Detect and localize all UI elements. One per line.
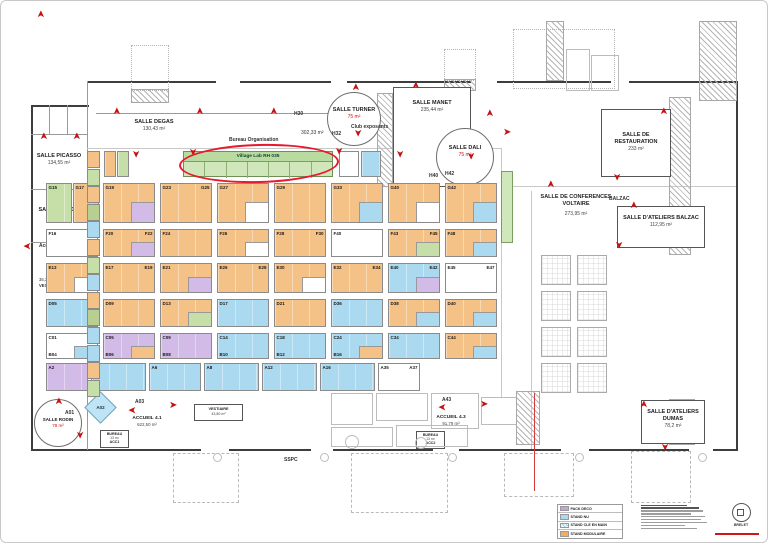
booth: [87, 239, 100, 256]
booth: F20F22: [103, 229, 155, 257]
booth-code: E19: [144, 265, 152, 270]
booth: E21: [160, 263, 212, 293]
booth: [87, 345, 100, 362]
booth: G27: [217, 183, 269, 223]
entrance-arrow-icon: ➤: [40, 132, 50, 140]
booth: G29: [274, 183, 326, 223]
booth-section: [188, 277, 211, 292]
booth-code: D21: [277, 301, 285, 306]
booth-code: D40: [448, 301, 456, 306]
booth: E17E19: [103, 263, 155, 293]
stair-block: [541, 363, 571, 393]
entrance-arrow-icon: ➤: [660, 107, 670, 115]
stair-block: [577, 255, 607, 285]
legend-item: PACK DECO: [558, 505, 622, 513]
booth: E30: [274, 263, 326, 293]
booth-code: F20: [106, 231, 114, 236]
label-h40: H40: [429, 173, 438, 179]
entrance-arrow-icon: ➤: [196, 107, 206, 115]
entrance-arrow-icon: ➤: [352, 83, 362, 91]
booth-code: D17: [220, 301, 228, 306]
booth: G23G25: [160, 183, 212, 223]
booth-code: C05: [106, 335, 114, 340]
booth-section: [188, 312, 211, 326]
booth: G42: [445, 183, 497, 223]
booth: F26: [217, 229, 269, 257]
entrance-arrow-icon: ➤: [394, 150, 404, 158]
wall-right: [736, 81, 738, 450]
booth-code: F28: [277, 231, 285, 236]
booth-code: C01: [49, 335, 57, 340]
booth-code: C34: [391, 335, 399, 340]
booth-code: D13: [163, 301, 171, 306]
booth-section: [359, 202, 382, 222]
booth: G40: [388, 183, 440, 223]
booth-code: A37: [409, 365, 417, 370]
booth: E40E42: [388, 263, 440, 293]
room-salle-restauration: SALLE DE RESTAURATION 233 m²: [601, 109, 671, 177]
booth: G15: [46, 183, 72, 223]
booth-code: B16: [334, 352, 342, 357]
booth: A35A37: [378, 363, 420, 391]
booth: A2: [46, 363, 88, 391]
axis-line: [534, 393, 535, 491]
booth: F43F45: [388, 229, 440, 257]
label-hall-area: 302,33 m²: [301, 130, 324, 136]
entrance-arrow-icon: ➤: [465, 152, 475, 160]
booth-code: G29: [277, 185, 286, 190]
room-salle-turner: SALLE TURNER 75 m²: [327, 92, 381, 146]
booth-section: [473, 242, 496, 256]
booth-code: B04: [49, 352, 57, 357]
booth: [361, 151, 381, 177]
entrance-arrow-icon: ➤: [270, 107, 280, 115]
booth: G33: [331, 183, 383, 223]
stair-block: [577, 327, 607, 357]
entrance-arrow-icon: ➤: [128, 404, 136, 414]
entrance-arrow-icon: ➤: [486, 109, 496, 117]
booth-code: D09: [106, 301, 114, 306]
booth: [87, 327, 100, 344]
booth-section: [416, 242, 439, 256]
room-atelier-balzac: SALLE D'ATELIERS BALZAC 112,95 m²: [617, 206, 705, 248]
booth-section: [473, 202, 496, 222]
booth-code: E45: [448, 265, 456, 270]
label-h30: H30: [294, 111, 303, 117]
booth-code: A12: [265, 365, 273, 370]
booth-code: E26: [220, 265, 228, 270]
label-h42: H42: [445, 171, 454, 177]
booth-code: D38: [391, 301, 399, 306]
booth-code: F48: [448, 231, 456, 236]
booth-code: E42: [429, 265, 437, 270]
booth-code: A35: [381, 365, 389, 370]
room-salle-degas: SALLE DEGAS 130,43 m²: [111, 119, 197, 132]
booth-code: C09: [163, 335, 171, 340]
booth: [87, 221, 100, 238]
booth-code: F40: [334, 231, 342, 236]
title-block-info: [641, 503, 709, 531]
booth: D13: [160, 299, 212, 327]
builder-stamp: BRELET: [730, 503, 752, 527]
stair-block: [541, 291, 571, 321]
booth: [87, 274, 100, 291]
legend-label: STAND NU: [571, 515, 589, 519]
booth-section: [131, 346, 154, 358]
booth: D17: [217, 299, 269, 327]
booth: F40: [331, 229, 383, 257]
booth-section: [416, 277, 439, 292]
legend-label: PACK DECO: [571, 507, 592, 511]
legend-swatch: [560, 506, 569, 512]
booth-code: F24: [163, 231, 171, 236]
booth-code: G15: [49, 185, 58, 190]
stamp-logo-icon: [732, 503, 751, 522]
booth-section: [131, 202, 154, 222]
booth-code: A6: [152, 365, 158, 370]
entrance-arrow-icon: ➤: [611, 173, 621, 181]
legend: PACK DECOSTAND NUSTAND CLE EN MAINSTAND …: [557, 504, 623, 539]
booth: [87, 169, 100, 186]
legend-label: STAND CLE EN MAIN: [571, 523, 607, 527]
label-a01: A01: [65, 410, 74, 416]
booth: A12: [262, 363, 317, 391]
booth-code: E28: [258, 265, 266, 270]
entrance-arrow-icon: ➤: [613, 241, 623, 249]
booth: [87, 309, 100, 326]
booth: A6: [149, 363, 201, 391]
booth: D09: [103, 299, 155, 327]
booth-code: E17: [106, 265, 114, 270]
label-h32: H32: [332, 131, 341, 137]
booth-code: E47: [486, 265, 494, 270]
booth: F24: [160, 229, 212, 257]
entrance-arrow-icon: ➤: [640, 400, 650, 408]
legend-label: STAND MODULAIRE: [571, 532, 606, 536]
booth-code: B10: [220, 352, 228, 357]
legend-item: STAND NU: [558, 513, 622, 521]
booth-code: E34: [372, 265, 380, 270]
booth: D21: [274, 299, 326, 327]
booth-section: [473, 346, 496, 358]
booth: [117, 151, 129, 177]
booth-section: [131, 242, 154, 256]
signature-mark: [715, 533, 759, 535]
stamp-name: BRELET: [730, 523, 752, 527]
entrance-arrow-icon: ➤: [23, 240, 31, 250]
booth: E32E34: [331, 263, 383, 293]
booth-code: E13: [49, 265, 57, 270]
booth: [87, 257, 100, 274]
legend-swatch: [560, 523, 569, 529]
booth: F48: [445, 229, 497, 257]
booth-section: [473, 312, 496, 326]
room-salle-picasso: SALLE PICASSO 134,55 m²: [31, 153, 87, 166]
booth: [87, 292, 100, 309]
stair-block: [577, 363, 607, 393]
booth: D36: [331, 299, 383, 327]
booth-code: F45: [430, 231, 438, 236]
room-accueil-41: ACCUEIL 4.1 622,50 m²: [119, 415, 175, 428]
booth: A8: [204, 363, 259, 391]
entrance-arrow-icon: ➤: [130, 150, 140, 158]
booth-code: B08: [163, 352, 171, 357]
booth-code: C14: [220, 335, 228, 340]
entrance-arrow-icon: ➤: [169, 401, 177, 411]
booth-code: G27: [220, 185, 229, 190]
label-balzac: BALZAC: [609, 196, 630, 202]
booth-code: A8: [207, 365, 213, 370]
entrance-arrow-icon: ➤: [503, 128, 511, 138]
booth-code: E40: [391, 265, 399, 270]
room-bureau-acc1: BUREAU 13 m² ACC1: [100, 430, 129, 448]
booth-section: [245, 202, 268, 222]
booth-code: G40: [391, 185, 400, 190]
entrance-arrow-icon: ➤: [113, 107, 123, 115]
booth-code: G33: [334, 185, 343, 190]
booth-code: D05: [49, 301, 57, 306]
booth-code: F26: [220, 231, 228, 236]
entrance-arrow-icon: ➤: [659, 443, 669, 451]
room-voltaire: SALLE DE CONFERENCES VOLTAIRE 273,95 m²: [536, 194, 616, 217]
entrance-arrow-icon: ➤: [55, 397, 65, 405]
booth-section: [302, 277, 325, 292]
booth: G19: [103, 183, 155, 223]
booth: D40: [445, 299, 497, 327]
booth-code: B12: [277, 352, 285, 357]
booth-code: F30: [316, 231, 324, 236]
booth-section: [416, 202, 439, 222]
booth-code: E21: [163, 265, 171, 270]
booth: [87, 186, 100, 203]
entrance-arrow-icon: ➤: [74, 431, 84, 439]
booth-code: F43: [391, 231, 399, 236]
booth-code: E32: [334, 265, 342, 270]
booth-code: A2: [49, 365, 55, 370]
entrance-arrow-icon: ➤: [73, 132, 83, 140]
booth-code: D36: [334, 301, 342, 306]
booth: C44: [445, 333, 497, 359]
floor-plan-canvas: SALLE PICASSO 134,55 m² SALLE RENOIR 134…: [1, 1, 767, 542]
booth-code: A16: [323, 365, 331, 370]
label-sspc: SSPC: [284, 457, 298, 463]
booth: C09B08: [160, 333, 212, 359]
booth-code: C18: [277, 335, 285, 340]
stair-block: [541, 327, 571, 357]
booth: F28F30: [274, 229, 326, 257]
booth-code: G17: [76, 185, 85, 190]
room-salle-rodin: SALLE RODIN 78 m²: [34, 399, 82, 447]
label-bureau-organisation: Bureau Organisation: [229, 137, 278, 143]
entrance-arrow-icon: ➤: [352, 129, 362, 137]
booth-code: F22: [145, 231, 153, 236]
title-block: PACK DECOSTAND NUSTAND CLE EN MAINSTAND …: [549, 497, 761, 539]
booth-code: G25: [201, 185, 210, 190]
legend-item: STAND CLE EN MAIN: [558, 522, 622, 530]
booth-code: C44: [448, 335, 456, 340]
booth-section: [359, 346, 382, 358]
booth: [104, 151, 116, 177]
village-vertical-strip: [501, 171, 513, 243]
entrance-arrow-icon: ➤: [480, 400, 488, 410]
booth: E45E47: [445, 263, 497, 293]
booth: C24B16: [331, 333, 383, 359]
room-atelier-dumas: SALLE D'ATELIERS DUMAS 78,2 m²: [641, 400, 705, 444]
booth-code: F16: [49, 231, 57, 236]
booth: [87, 380, 100, 397]
booth: C34: [388, 333, 440, 359]
booth: [87, 151, 100, 168]
legend-swatch: [560, 531, 569, 537]
stair-block: [577, 291, 607, 321]
entrance-arrow-icon: ➤: [412, 81, 422, 89]
entrance-arrow-icon: ➤: [37, 10, 47, 18]
booth-code: E30: [277, 265, 285, 270]
booth: A16: [320, 363, 375, 391]
entrance-arrow-icon: ➤: [630, 201, 640, 209]
entrance-arrow-icon: ➤: [547, 180, 557, 188]
booth-section: [416, 312, 439, 326]
booth-code: G42: [448, 185, 457, 190]
legend-swatch: [560, 514, 569, 520]
booth: C18B12: [274, 333, 326, 359]
booth-code: B06: [106, 352, 114, 357]
label-a02: A02: [90, 397, 111, 418]
booth: [87, 204, 100, 221]
floor-plan-page: SALLE PICASSO 134,55 m² SALLE RENOIR 134…: [0, 0, 768, 543]
booth: C14B10: [217, 333, 269, 359]
entrance-arrow-icon: ➤: [333, 147, 343, 155]
entrance-arrow-icon: ➤: [438, 401, 446, 411]
booth-code: G19: [106, 185, 115, 190]
booth-code: G23: [163, 185, 172, 190]
booth-code: C24: [334, 335, 342, 340]
booth: C05B06: [103, 333, 155, 359]
booth: [87, 362, 100, 379]
booth: D38: [388, 299, 440, 327]
legend-item: STAND MODULAIRE: [558, 530, 622, 537]
booth-section: [245, 242, 268, 256]
room-vestiaire-2: VESTIAIRE 43,80 m²: [194, 404, 243, 421]
booth: E26E28: [217, 263, 269, 293]
stair-block: [541, 255, 571, 285]
